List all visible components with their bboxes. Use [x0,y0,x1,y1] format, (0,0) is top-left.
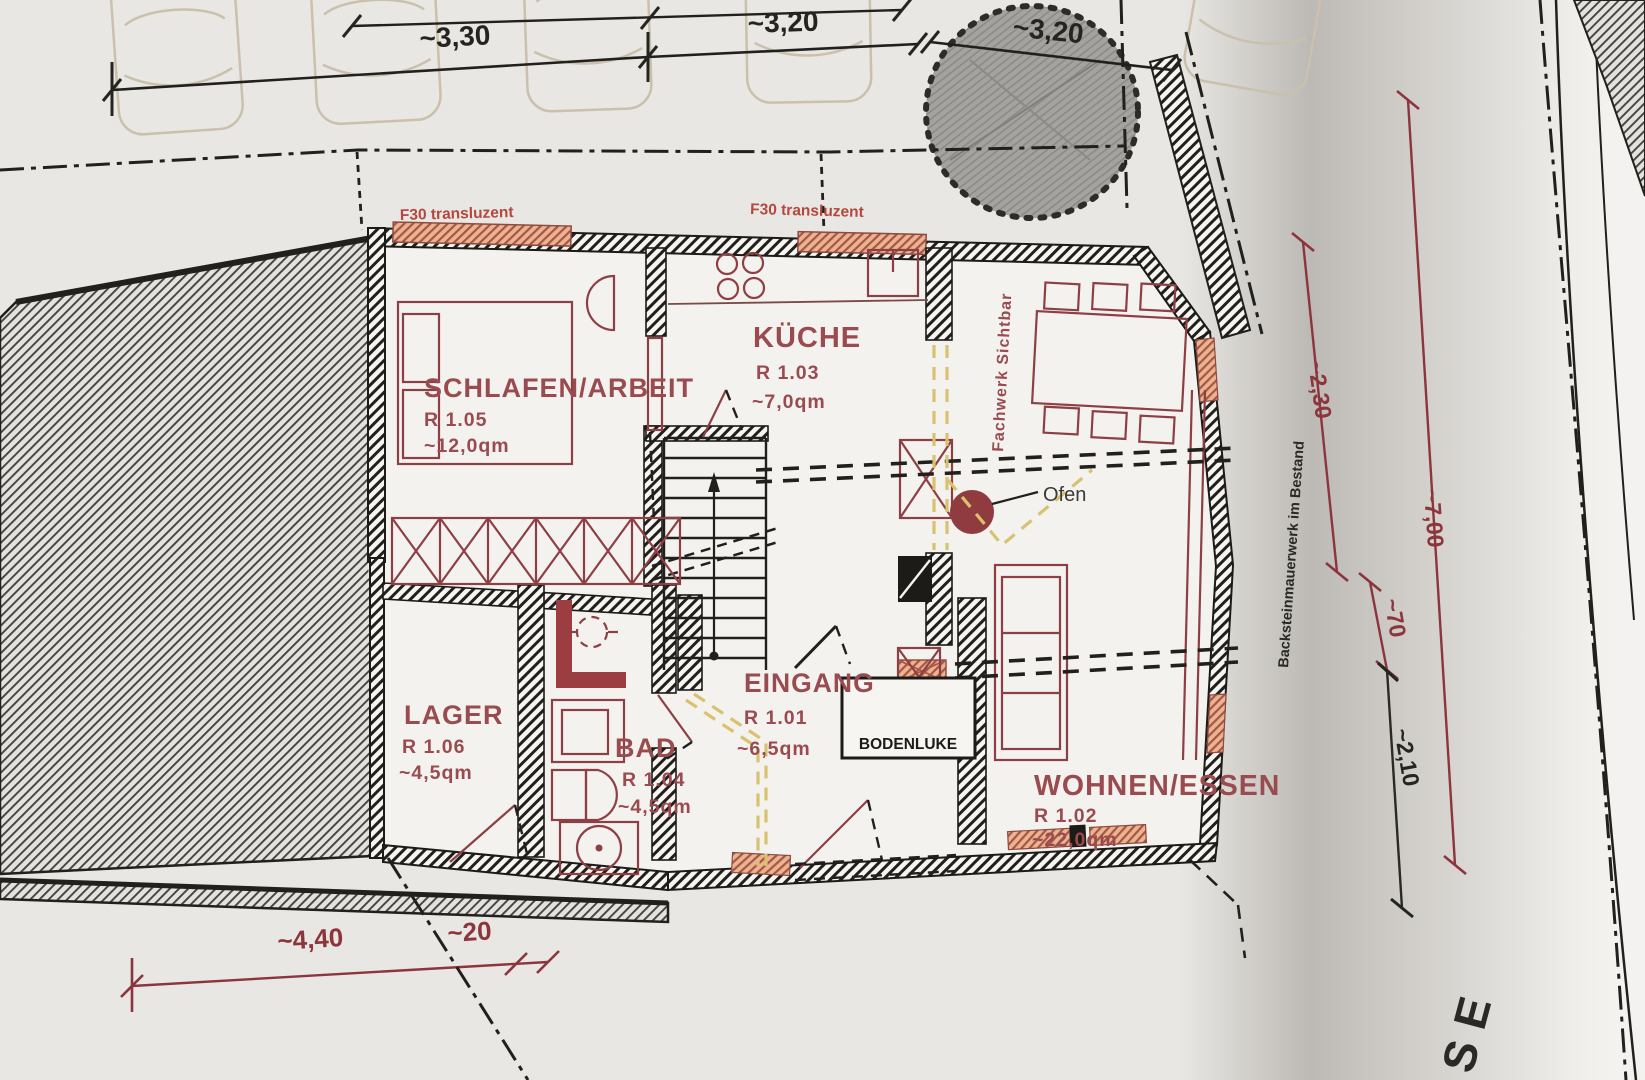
room-kueche-name: KÜCHE [753,321,861,354]
ofen-label: Ofen [1043,484,1086,506]
sealed-wall [556,600,572,680]
floor-plan-photo: ~3,30 ~3,20 ~3,20 [0,0,1645,1080]
room-lager-area: ~4,5qm [399,762,473,784]
room-schlafen-number: R 1.05 [424,409,487,431]
f30-right-label: F30 transluzent [750,201,864,221]
dim-top-2: ~3,20 [747,6,819,39]
dim-bottom-2: ~20 [447,915,493,948]
window-f30-left [393,222,571,246]
room-kueche-area: ~7,0qm [752,391,826,413]
bodenluke-label: BODENLUKE [859,736,957,753]
dim-right-2: ~7,00 [1419,489,1449,549]
window-east-2 [1207,694,1226,753]
room-eingang-area: ~6,5qm [737,738,811,760]
room-bad-name: BAD [615,733,677,763]
f30-left-label: F30 transluzent [400,204,514,224]
window-east-1 [1196,338,1218,402]
room-lager-number: R 1.06 [402,736,465,758]
room-bad-number: R 1.04 [622,769,685,791]
ofen-icon [950,490,994,534]
room-kueche-number: R 1.03 [756,362,819,384]
window-entry [732,852,791,875]
room-schlafen-name: SCHLAFEN/ARBEIT [424,373,694,403]
room-wohnen-name: WOHNEN/ESSEN [1034,770,1280,802]
room-eingang-number: R 1.01 [744,707,807,729]
floor-plan-drawing: ~3,30 ~3,20 ~3,20 [0,0,1645,1080]
dim-bottom-1: ~4,40 [277,922,345,956]
room-lager-name: LAGER [404,700,504,730]
room-wohnen-area: ~22,0qm [1032,829,1118,851]
room-eingang-name: EINGANG [744,668,875,698]
room-wohnen-number: R 1.02 [1034,805,1097,827]
room-schlafen-area: ~12,0qm [424,435,510,457]
room-bad-area: ~4,5qm [618,796,692,818]
dim-top-1: ~3,30 [419,19,491,54]
